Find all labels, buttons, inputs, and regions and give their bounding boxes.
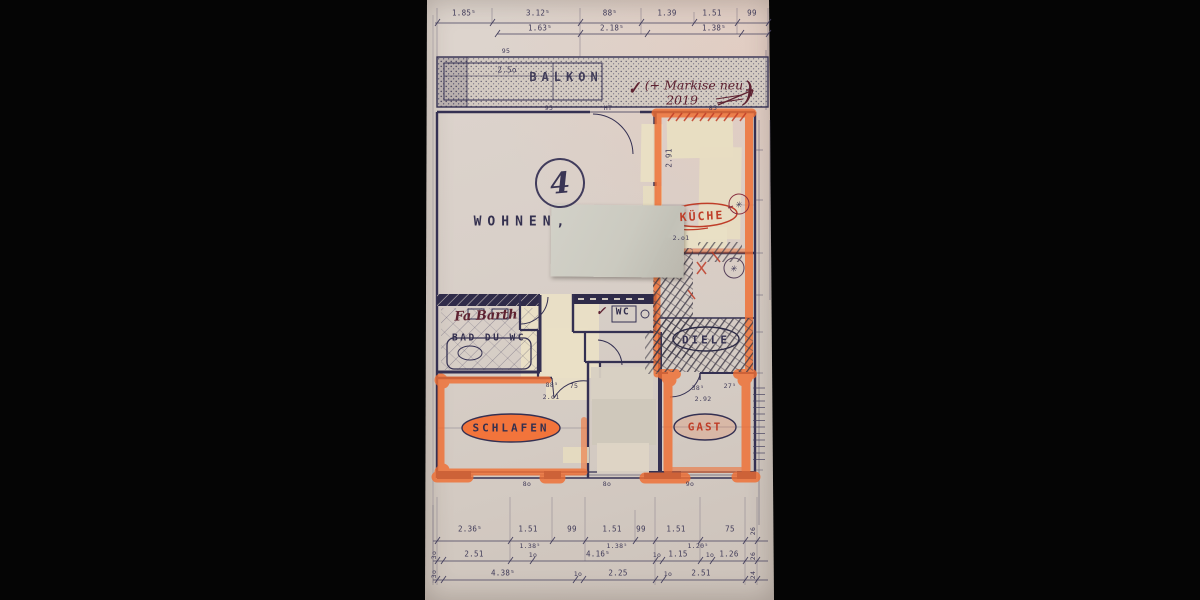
handwritten-note-paren: ) xyxy=(743,76,754,109)
room-label-wc: WC xyxy=(616,307,630,318)
dim-gast: 27⁵ xyxy=(724,382,737,390)
dim-bottom: 26 xyxy=(749,552,757,560)
room-label-wohnen: WOHNEN, xyxy=(474,215,571,230)
dim-bottom: 26 xyxy=(749,527,757,535)
dim-balcony: 2.5o xyxy=(497,66,516,75)
wc-checkmark-icon: ✓ xyxy=(596,304,606,318)
dim-bottom: 3o xyxy=(430,551,438,559)
dim-bottom: 1.20⁵ xyxy=(687,542,708,550)
dim-bottom: 24 xyxy=(749,571,757,579)
dim-bottom: 1.51 xyxy=(602,525,621,534)
room-label-kueche: KÜCHE xyxy=(679,208,724,224)
dim-bottom: 99 xyxy=(636,525,646,534)
dim-top: 1.85⁵ xyxy=(452,9,476,18)
dim-bottom: 4.16⁵ xyxy=(586,550,610,559)
handwritten-note-line2: 2019 xyxy=(666,93,698,108)
dim-bottom: 1o xyxy=(653,551,661,559)
dim-bottom: 2.36⁵ xyxy=(458,525,482,534)
room-label-diele: DIELE xyxy=(682,334,730,347)
photo-of-floor-plan: 1.85⁵ 3.12⁵ 88⁵ 1.39 1.51 99 1.63⁵ 2.18⁵… xyxy=(0,0,1200,600)
dim-window: 8o xyxy=(523,480,531,488)
dim-mid: 2.o1 xyxy=(543,393,560,401)
dim-kueche-top: 85 xyxy=(709,104,717,112)
dim-bottom: 1.51 xyxy=(666,525,685,534)
floor-plan-linework xyxy=(0,0,1200,600)
dim-bottom: 1o xyxy=(574,570,582,578)
room-label-bad: BAD DU WC xyxy=(452,333,526,344)
dim-bottom: 1o xyxy=(706,551,714,559)
dim-mid: 88⁵ xyxy=(546,381,559,389)
dim-bottom: 2.51 xyxy=(464,550,483,559)
dim-bottom: 1.26 xyxy=(719,550,738,559)
dim-balcony: 95 xyxy=(502,47,510,55)
blank-sticky-note xyxy=(551,204,685,277)
dim-gast: 2.92 xyxy=(695,395,712,403)
dim-top: 3.12⁵ xyxy=(526,9,550,18)
room-label-balkon: BALKON xyxy=(529,70,602,84)
room-label-schlafen: SCHLAFEN xyxy=(473,422,550,435)
dim-bottom: 75 xyxy=(725,525,735,534)
bath-handwriting: Fa Barth xyxy=(454,307,518,324)
dim-bottom: 99 xyxy=(567,525,577,534)
dim-bottom: 1.15 xyxy=(668,550,687,559)
dim-top: 1.63⁵ xyxy=(528,24,552,33)
dim-bottom: 2.25 xyxy=(608,569,627,578)
dim-top: 1.51 xyxy=(702,9,721,18)
dim-top: 2.18⁵ xyxy=(600,24,624,33)
dim-bottom: 1.51 xyxy=(518,525,537,534)
dim-window: 8o xyxy=(603,480,611,488)
dim-kueche-left: 2.91 xyxy=(665,148,674,167)
dim-ht: HT xyxy=(604,104,612,112)
dim-top: 1.38⁵ xyxy=(702,24,726,33)
handwritten-note-line1: (+ Markise neu xyxy=(645,78,743,93)
dim-bottom: 1o xyxy=(664,570,672,578)
dim-bottom: 4.38⁵ xyxy=(491,569,515,578)
dim-bottom: 1o xyxy=(529,551,537,559)
dim-balcony: 95 xyxy=(545,104,553,112)
dim-top: 1.39 xyxy=(657,9,676,18)
dim-mid: 75 xyxy=(570,382,578,390)
dim-bottom: 1.38⁵ xyxy=(519,542,540,550)
dim-kueche-bottom: 2.o1 xyxy=(673,234,690,242)
dim-top: 88⁵ xyxy=(603,9,617,18)
dim-bottom: 3o xyxy=(430,570,438,578)
dim-gast: 38⁵ xyxy=(692,384,705,392)
dim-top: 99 xyxy=(747,9,757,18)
dim-window: 9o xyxy=(686,480,694,488)
room-label-gast: GAST xyxy=(688,421,723,434)
dim-bottom: 2.51 xyxy=(691,569,710,578)
